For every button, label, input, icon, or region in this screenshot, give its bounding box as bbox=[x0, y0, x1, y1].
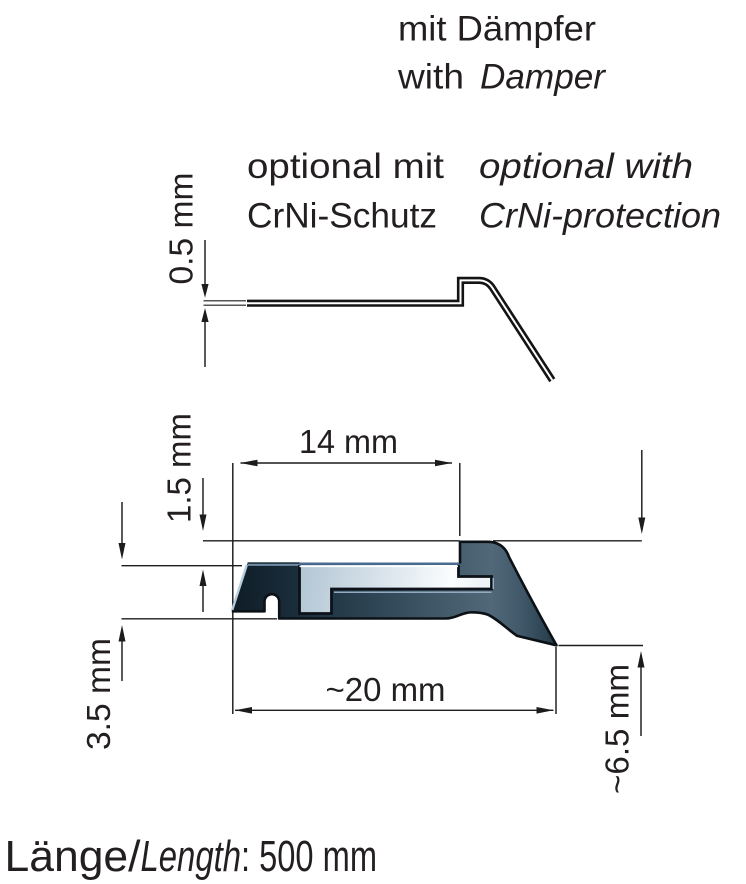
svg-text:3.5 mm: 3.5 mm bbox=[80, 638, 117, 750]
svg-text:Length: Length bbox=[141, 832, 242, 881]
svg-text:Länge/: Länge/ bbox=[5, 832, 142, 881]
svg-text:with: with bbox=[397, 58, 464, 97]
svg-text:0.5 mm: 0.5 mm bbox=[163, 173, 200, 285]
svg-text:~20 mm: ~20 mm bbox=[326, 671, 446, 708]
svg-text:mit Dämpfer: mit Dämpfer bbox=[398, 10, 596, 49]
svg-text:1.5 mm: 1.5 mm bbox=[161, 413, 198, 523]
svg-text:14 mm: 14 mm bbox=[299, 423, 398, 460]
svg-text:optional mit: optional mit bbox=[247, 147, 444, 186]
svg-text:optional with: optional with bbox=[479, 147, 693, 186]
svg-text:CrNi-Schutz: CrNi-Schutz bbox=[247, 197, 437, 236]
svg-text:: 500 mm: : 500 mm bbox=[241, 832, 377, 881]
svg-text:Damper: Damper bbox=[480, 58, 606, 97]
svg-text:~6.5 mm: ~6.5 mm bbox=[599, 664, 636, 794]
svg-text:CrNi-protection: CrNi-protection bbox=[479, 197, 721, 236]
